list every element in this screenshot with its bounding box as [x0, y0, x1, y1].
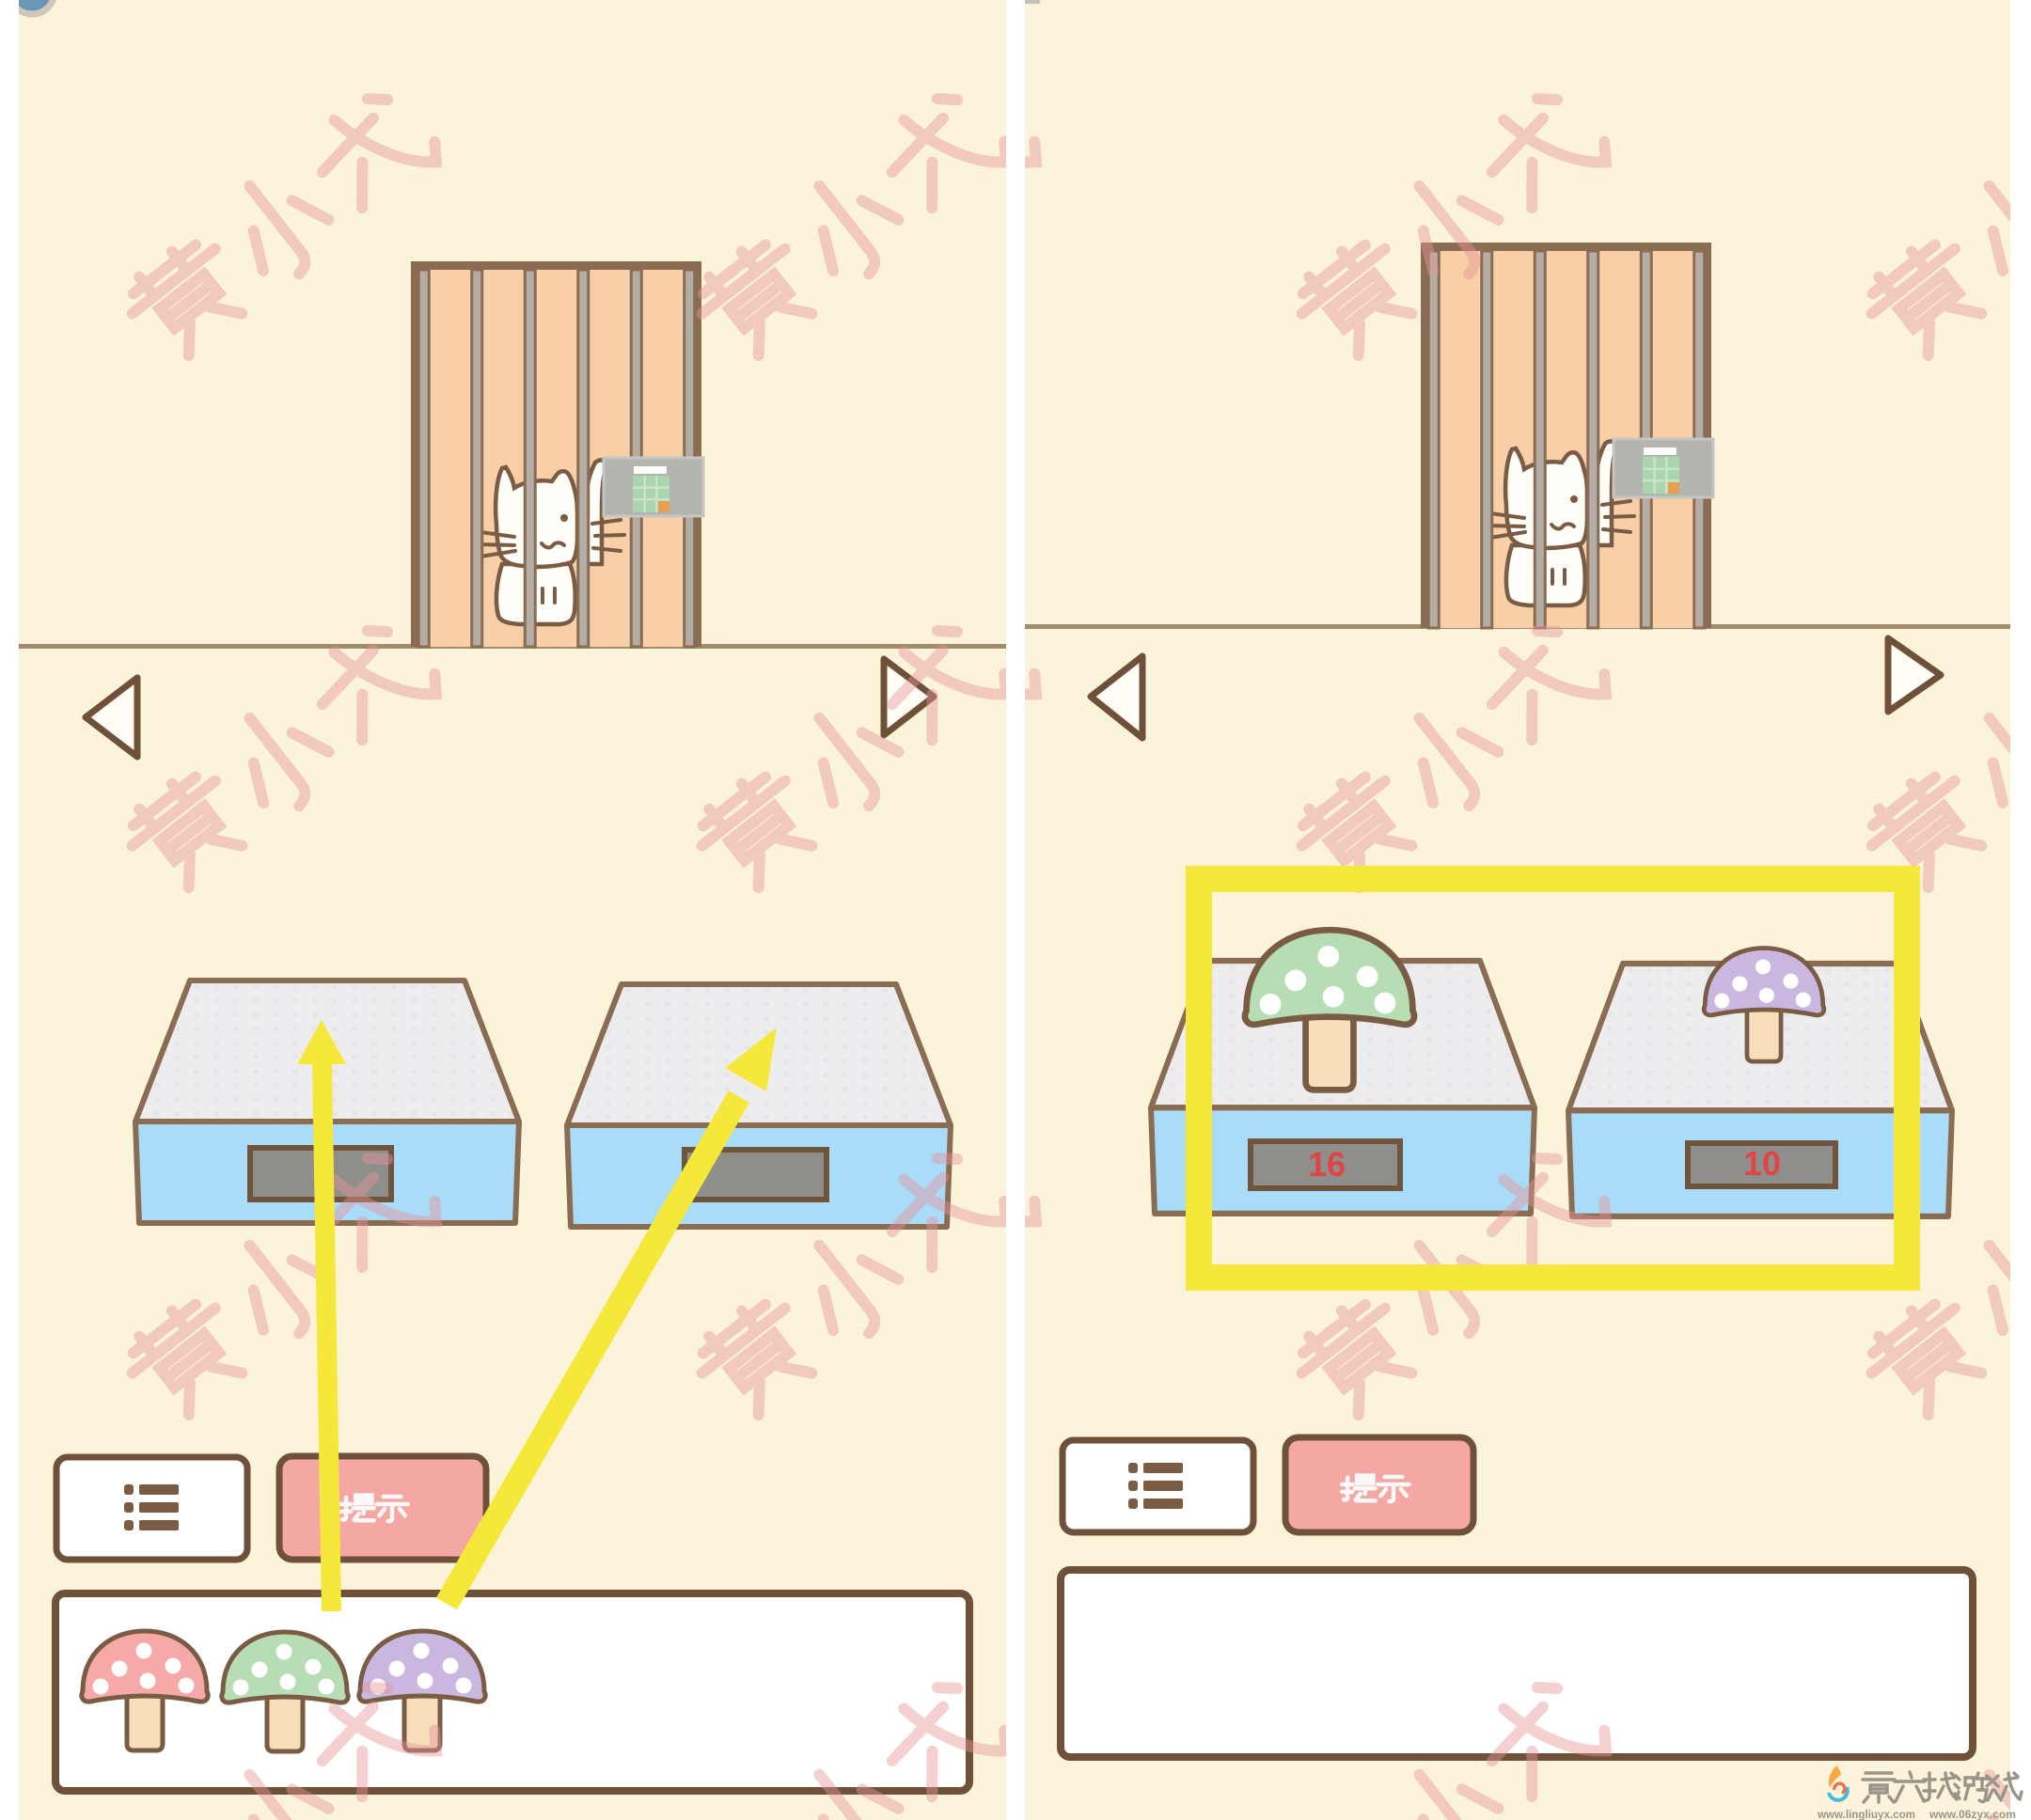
- svg-text:www.lingliuyx.com: www.lingliuyx.com: [1817, 1808, 1915, 1820]
- svg-text:www.06zyx.com: www.06zyx.com: [1929, 1808, 2016, 1820]
